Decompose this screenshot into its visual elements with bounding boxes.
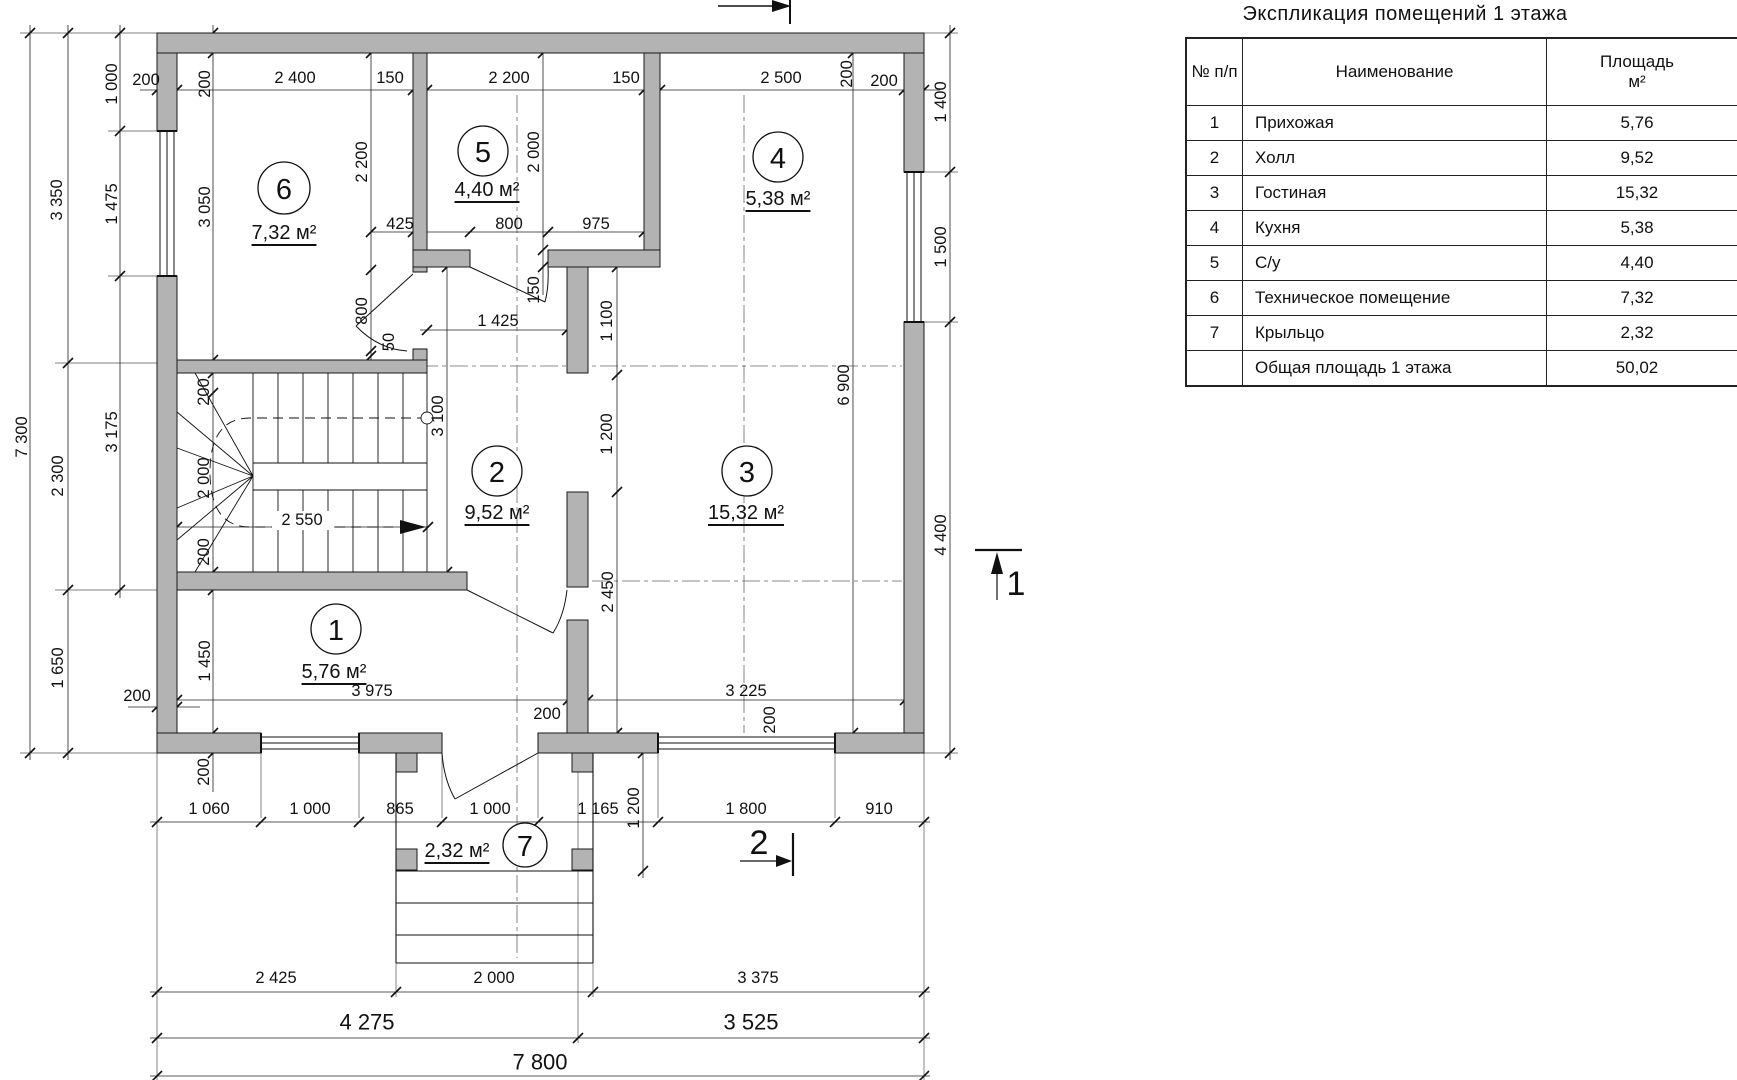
floor-plan-drawing: 200 2 400 150 2 200 150 2 500 200 425 80… [0, 0, 1085, 1080]
door-entrance [442, 733, 538, 799]
room-number: 5 [475, 137, 491, 169]
room-number: 7 [517, 831, 533, 863]
dim-label: 3 350 [48, 179, 66, 220]
dim-label: 1 475 [103, 183, 121, 224]
room-number: 6 [276, 174, 292, 206]
col-header-name: Наименование [1243, 38, 1547, 106]
room-number: 3 [739, 457, 755, 489]
dim-label: 800 [495, 215, 523, 233]
dim-label: 910 [865, 800, 893, 818]
dim-label: 2 550 [281, 511, 322, 529]
dim-label: 7 300 [13, 416, 31, 457]
table-row: 5С/у4,40 [1186, 246, 1737, 281]
dim-label: 1 450 [196, 640, 214, 681]
dim-label: 4 275 [339, 1010, 394, 1035]
schedule-table: № п/п Наименование Площадьм² 1Прихожая5,… [1185, 37, 1737, 387]
section-marker-1: 1 [975, 550, 1025, 603]
dim-label: 200 [533, 705, 561, 723]
section-marker-2-bottom: 2 [740, 824, 793, 876]
dim-label: 4 400 [932, 514, 950, 555]
table-row: 1Прихожая5,76 [1186, 106, 1737, 141]
room-number: 2 [489, 457, 505, 489]
dim-label: 975 [582, 215, 610, 233]
room-area: 9,52 м² [465, 502, 530, 524]
dim-label: 200 [761, 706, 779, 734]
section-label: 2 [750, 824, 769, 862]
dim-label: 2 400 [274, 69, 315, 87]
table-row: 4Кухня5,38 [1186, 211, 1737, 246]
porch-post [396, 849, 417, 870]
dim-label: 200 [838, 60, 856, 88]
dim-label: 2 450 [599, 571, 617, 612]
dim-label: 200 [196, 70, 214, 98]
dim-label: 1 800 [725, 800, 766, 818]
dim-label: 1 200 [625, 787, 643, 828]
dim-label: 2 200 [488, 69, 529, 87]
porch-post [572, 753, 593, 772]
table-row: 3Гостиная15,32 [1186, 176, 1737, 211]
dim-label: 50 [380, 333, 398, 351]
table-row: 6Техническое помещение7,32 [1186, 281, 1737, 316]
room-labels: 6 7,32 м² 5 4,40 м² 4 5,38 м² 2 9,52 м² … [252, 126, 811, 867]
stair-direction-arrow [400, 520, 426, 534]
dim-label: 800 [353, 297, 371, 325]
dim-label: 3 975 [351, 682, 392, 700]
dim-label: 3 525 [723, 1010, 778, 1035]
room-number: 1 [328, 615, 344, 647]
dim-label: 425 [386, 215, 414, 233]
dim-label: 200 [195, 538, 213, 566]
porch-post [572, 849, 593, 870]
room-area: 5,76 м² [302, 661, 367, 683]
dim-label: 200 [132, 71, 160, 89]
room-area: 5,38 м² [746, 188, 811, 210]
dim-label: 1 425 [477, 312, 518, 330]
dim-label: 200 [195, 758, 213, 786]
dim-label: 1 400 [932, 81, 950, 122]
dim-label: 1 165 [577, 800, 618, 818]
dim-label: 1 100 [598, 300, 616, 341]
dim-label: 150 [525, 276, 543, 304]
dim-label: 3 375 [737, 969, 778, 987]
dim-label: 2 000 [525, 131, 543, 172]
section-label: 1 [1007, 565, 1026, 603]
dim-label: 3 050 [196, 186, 214, 227]
table-row-total: Общая площадь 1 этажа50,02 [1186, 351, 1737, 387]
room-number: 4 [770, 143, 786, 175]
dim-label: 7 800 [512, 1050, 567, 1075]
dim-label: 2 200 [353, 141, 371, 182]
col-header-num: № п/п [1186, 38, 1243, 106]
room-area: 4,40 м² [455, 179, 520, 201]
porch-post [396, 753, 417, 772]
dim-label: 1 000 [103, 63, 121, 104]
dim-label: 2 000 [473, 969, 514, 987]
floor-plan-sheet: 200 2 400 150 2 200 150 2 500 200 425 80… [0, 0, 1737, 1080]
section-arrow-icon [776, 855, 792, 867]
dim-label: 865 [386, 800, 414, 818]
dim-label: 150 [612, 69, 640, 87]
dim-label: 3 100 [429, 395, 447, 436]
section-marker-2-top [718, 0, 791, 24]
dim-label: 1 500 [932, 226, 950, 267]
schedule-header-row: № п/п Наименование Площадьм² [1186, 38, 1737, 106]
dim-label: 1 060 [188, 800, 229, 818]
room-area: 7,32 м² [252, 222, 317, 244]
table-row: 7Крыльцо2,32 [1186, 316, 1737, 351]
dim-label: 2 300 [49, 455, 67, 496]
dim-label: 2 425 [255, 969, 296, 987]
dim-label: 3 175 [103, 411, 121, 452]
room-area: 2,32 м² [425, 840, 490, 862]
dim-label: 2 000 [195, 457, 213, 498]
dim-label: 1 000 [469, 800, 510, 818]
dim-label: 1 200 [598, 413, 616, 454]
dim-label: 200 [123, 687, 151, 705]
dim-label: 2 500 [760, 69, 801, 87]
table-row: 2Холл9,52 [1186, 141, 1737, 176]
dim-label: 3 225 [725, 682, 766, 700]
dim-label: 1 000 [289, 800, 330, 818]
dim-label: 1 650 [49, 647, 67, 688]
section-arrow-icon [991, 552, 1003, 574]
col-header-area: Площадьм² [1547, 38, 1737, 106]
room-schedule: Экспликация помещений 1 этажа № п/п Наим… [1185, 37, 1723, 387]
section-arrow-icon [772, 0, 791, 12]
dim-label: 200 [870, 72, 898, 90]
stairs [177, 373, 433, 572]
dim-label: 150 [376, 69, 404, 87]
dim-label: 200 [195, 378, 213, 406]
dim-label: 6 900 [835, 364, 853, 405]
schedule-title: Экспликация помещений 1 этажа [1125, 3, 1685, 26]
room-area: 15,32 м² [708, 502, 784, 524]
